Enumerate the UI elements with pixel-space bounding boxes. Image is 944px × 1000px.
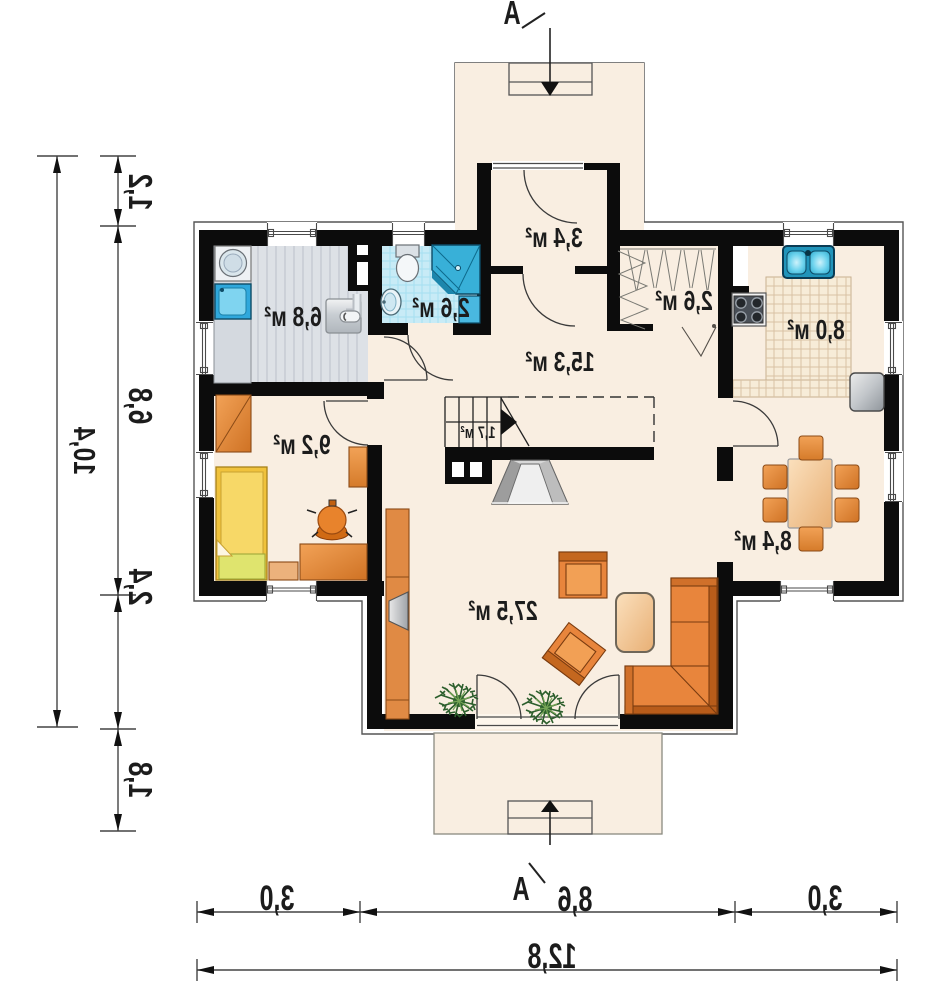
svg-text:6,8: 6,8 (121, 388, 157, 425)
svg-text:3,0: 3,0 (807, 879, 842, 918)
svg-text:A: A (512, 871, 529, 908)
svg-text:3,0: 3,0 (259, 879, 294, 918)
svg-text:A: A (503, 0, 520, 32)
svg-text:3,4 м²: 3,4 м² (525, 223, 583, 254)
svg-text:27,5 м²: 27,5 м² (468, 596, 537, 627)
svg-text:15,3 м²: 15,3 м² (525, 347, 594, 378)
svg-text:1,2: 1,2 (121, 174, 157, 211)
svg-text:6,8 м²: 6,8 м² (264, 302, 322, 333)
svg-text:9,2 м²: 9,2 м² (273, 430, 331, 461)
svg-text:8,6: 8,6 (557, 880, 592, 919)
svg-text:1,8: 1,8 (121, 762, 157, 799)
svg-text:1,7 м²: 1,7 м² (461, 423, 496, 442)
svg-text:2,6 м²: 2,6 м² (412, 293, 470, 324)
svg-text:8,0 м²: 8,0 м² (787, 315, 845, 346)
svg-text:12,8: 12,8 (527, 937, 576, 976)
svg-text:2,4: 2,4 (121, 568, 157, 605)
svg-text:10,4: 10,4 (67, 427, 101, 476)
svg-text:8,4 м²: 8,4 м² (734, 526, 792, 557)
svg-text:2,6 м²: 2,6 м² (655, 286, 713, 317)
